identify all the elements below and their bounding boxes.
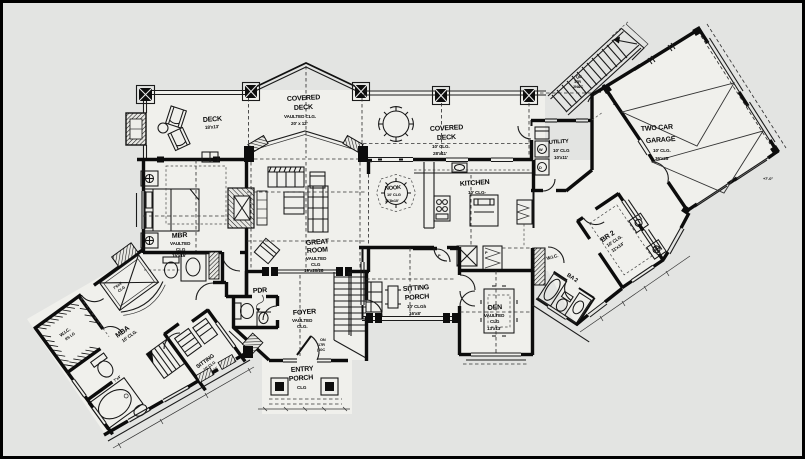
svg-text:10' CLG: 10' CLG [553, 148, 570, 153]
svg-text:DECK: DECK [294, 104, 314, 112]
svg-text:10' CLG: 10' CLG [387, 192, 401, 197]
svg-text:VAULTED: VAULTED [170, 241, 191, 246]
svg-text:16'x8': 16'x8' [409, 311, 421, 316]
svg-text:DECK: DECK [203, 116, 223, 124]
svg-text:10' CLG.: 10' CLG. [653, 148, 671, 153]
svg-text:VAULTED: VAULTED [484, 313, 505, 318]
svg-text:PDR: PDR [253, 287, 268, 295]
svg-text:10' CLG-: 10' CLG- [468, 190, 486, 195]
svg-text:+7'-0": +7'-0" [763, 176, 773, 181]
svg-text:10' CLG.: 10' CLG. [432, 144, 450, 149]
svg-text:D: D [539, 165, 542, 170]
svg-text:20' x 12': 20' x 12' [291, 121, 308, 126]
svg-text:DEN: DEN [488, 304, 503, 312]
svg-text:28'x11': 28'x11' [433, 151, 447, 156]
svg-text:VAULTED: VAULTED [292, 318, 313, 323]
svg-text:DECK: DECK [437, 134, 457, 142]
svg-text:18'x13': 18'x13' [205, 124, 220, 130]
svg-text:CLG: CLG [311, 262, 321, 267]
svg-text:10'x11': 10'x11' [554, 155, 568, 160]
svg-text:NOOK: NOOK [385, 185, 402, 192]
svg-text:MBR: MBR [172, 232, 188, 240]
svg-text:CLG: CLG [490, 319, 500, 324]
svg-text:VAULTED: VAULTED [306, 256, 327, 261]
svg-text:2N&C: 2N&C [573, 84, 583, 89]
svg-text:36'x25': 36'x25' [655, 156, 669, 161]
svg-text:CLG: CLG [297, 385, 307, 390]
svg-text:VAULTED CLG.: VAULTED CLG. [284, 114, 316, 119]
svg-text:ROOM: ROOM [307, 247, 329, 255]
svg-text:CLG.: CLG. [297, 324, 308, 329]
svg-text:13'x13': 13'x13' [487, 326, 501, 331]
svg-text:W: W [539, 147, 543, 152]
svg-text:11'8x10': 11'8x10' [385, 198, 399, 203]
